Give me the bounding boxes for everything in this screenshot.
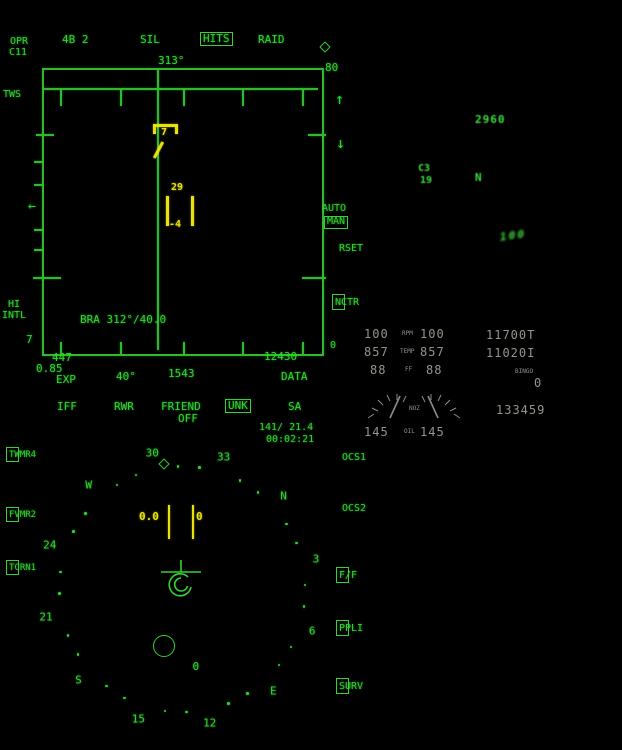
temp-right-value: 857	[420, 346, 445, 358]
compass-tick-dot	[185, 711, 188, 714]
nctr-button[interactable]: NCTR	[332, 294, 345, 310]
bandit-symbol-left-end	[153, 126, 156, 134]
compass-tick-dot	[135, 474, 138, 477]
ifei-clock-readout: 133459	[496, 404, 545, 416]
bandit-number: 7	[161, 128, 167, 138]
nozzle-gauges: NOZ	[360, 378, 468, 424]
compass-tick-dot	[164, 710, 167, 713]
temp-label: TEMP	[400, 349, 414, 355]
hi-label[interactable]: HI	[8, 300, 20, 310]
rpm-left-value: 100	[364, 328, 389, 340]
azimuth-tick	[120, 90, 122, 106]
ff-donor-button[interactable]: F/F	[336, 567, 349, 583]
compass-label-6: 6	[309, 625, 316, 636]
center-right-readout: 0	[196, 511, 203, 522]
radar-bars-option[interactable]: 4B 2	[62, 34, 89, 45]
elevation-tick	[36, 134, 54, 136]
compass-label-21: 21	[39, 611, 52, 622]
compass-label-3: 3	[313, 554, 320, 565]
hsi-left-button-3[interactable]: TCRN1	[6, 560, 19, 575]
exp-button[interactable]: EXP	[56, 374, 76, 385]
mission-time-readout: 00:02:21	[266, 435, 314, 445]
compass-tick-dot	[72, 530, 75, 533]
ff-left-value: 88	[370, 364, 386, 376]
compass-tick-dot	[84, 512, 87, 515]
range-down-arrow-icon[interactable]: ↓	[336, 136, 345, 151]
sa-page-label: SA	[288, 401, 301, 412]
compass-label-30: 30	[146, 448, 159, 459]
oil-right-value: 145	[420, 426, 445, 438]
radar-mode-label: OPR	[10, 37, 28, 47]
elevation-tick	[34, 161, 42, 163]
ppli-donor-button[interactable]: PPLI	[336, 620, 349, 636]
compass-tick-dot	[278, 664, 281, 667]
radar-range-max: 80	[325, 62, 338, 73]
radar-range-min: 0	[330, 341, 336, 351]
target-altitude: 29	[171, 183, 183, 193]
ocs2-button[interactable]: OCS2	[342, 503, 349, 515]
temp-left-value: 857	[364, 346, 389, 358]
azimuth-readout[interactable]: 40°	[116, 371, 136, 382]
hud-heading-letter: N	[475, 172, 482, 183]
ff-right-value: 88	[426, 364, 442, 376]
range-tick	[242, 342, 244, 354]
ownship-aircraft-icon	[157, 556, 205, 602]
elevation-tick	[308, 134, 326, 136]
hud-lower-right-readout: 100	[499, 228, 526, 242]
radar-heading-readout: 313°	[158, 55, 185, 66]
azimuth-tick	[60, 90, 62, 106]
own-altitude: 7	[26, 334, 33, 345]
ifei-panel: 100 RPM 100 857 TEMP 857 88 FF 88	[360, 322, 468, 448]
radar-diamond-icon	[319, 41, 330, 52]
target-bracket-right[interactable]	[191, 196, 194, 226]
oil-left-value: 145	[364, 426, 389, 438]
rpm-right-value: 100	[420, 328, 445, 340]
compass-tick-dot	[257, 491, 260, 494]
course-speed-readout: 141/ 21.4	[259, 423, 313, 433]
radar-sil-option[interactable]: SIL	[140, 34, 160, 45]
compass-tick-dot	[246, 692, 249, 695]
azimuth-tick	[242, 90, 244, 106]
time-readout: 1543	[168, 368, 195, 379]
compass-tick-dot	[105, 685, 108, 688]
unk-filter-button[interactable]: UNK	[225, 399, 251, 413]
compass-tick-dot	[77, 653, 80, 656]
elevation-tick-long	[33, 277, 61, 279]
azimuth-tick	[302, 90, 304, 106]
hsi-left-button-1[interactable]: TWMR4	[6, 447, 19, 462]
fuel-total-readout: 11700T	[486, 329, 535, 341]
waypoint-symbol[interactable]: 0	[153, 635, 175, 657]
readout-12430: 12430	[264, 351, 297, 362]
hud-left-upper-readout: C3	[418, 164, 430, 174]
compass-label-W: W	[85, 480, 92, 491]
hud-altitude-readout: 2960	[475, 114, 506, 125]
compass-label-33: 33	[217, 451, 230, 462]
ff-label: FF	[405, 367, 412, 373]
rwr-button[interactable]: RWR	[114, 401, 134, 412]
compass-label-N: N	[280, 490, 287, 501]
rset-button[interactable]: RSET	[339, 243, 346, 255]
iff-button[interactable]: IFF	[57, 401, 77, 412]
elevation-caret-arrow-icon[interactable]: ←	[28, 200, 36, 213]
bingo-label: BINGO	[515, 369, 533, 375]
bingo-value: 0	[534, 377, 542, 389]
compass-tick-dot	[198, 466, 201, 469]
azimuth-tick	[183, 90, 185, 106]
intl-label[interactable]: INTL	[2, 311, 26, 321]
compass-tick-dot	[285, 523, 288, 526]
man-option[interactable]: MAN	[324, 216, 348, 229]
target-aspect: -4	[169, 220, 181, 230]
radar-raid-option[interactable]: RAID	[258, 34, 285, 45]
oil-label: OIL	[404, 429, 415, 435]
radar-hits-option[interactable]: HITS	[200, 32, 233, 46]
elevation-tick	[34, 184, 42, 186]
range-tick	[120, 342, 122, 354]
center-left-bar	[168, 505, 170, 539]
compass-label-E: E	[270, 685, 277, 696]
data-button[interactable]: DATA	[281, 371, 308, 382]
elevation-tick-long	[302, 277, 326, 279]
surv-donor-button[interactable]: SURV	[336, 678, 349, 694]
radar-scan-mode[interactable]: TWS	[3, 90, 21, 100]
compass-tick-dot	[295, 542, 298, 545]
friend-filter-label[interactable]: FRIEND	[161, 401, 201, 412]
compass-tick-dot	[59, 571, 62, 574]
compass-tick-dot	[58, 592, 61, 595]
compass-tick-dot	[116, 484, 119, 487]
bra-readout: BRA 312°/40.0	[80, 314, 166, 325]
off-label[interactable]: OFF	[178, 413, 198, 424]
radar-center-azimuth-line	[157, 70, 159, 350]
course-diamond-icon[interactable]	[158, 459, 169, 470]
compass-tick-dot	[67, 634, 70, 637]
center-right-bar	[192, 505, 194, 539]
compass-tick-dot	[303, 605, 306, 608]
compass-tick-dot	[177, 465, 180, 468]
radar-channel-label: C11	[9, 48, 27, 58]
compass-tick-dot	[290, 646, 293, 649]
hud-left-lower-readout: 19	[420, 176, 432, 186]
radar-top-band-line	[44, 88, 318, 90]
waypoint-number: 0	[193, 660, 200, 673]
hsi-left-button-2[interactable]: FVMR2	[6, 507, 19, 522]
fuel-internal-readout: 11020I	[486, 347, 535, 359]
compass-tick-dot	[239, 479, 242, 482]
compass-label-24: 24	[43, 540, 56, 551]
ocs1-button[interactable]: OCS1	[342, 452, 349, 464]
range-tick	[183, 342, 185, 354]
range-up-arrow-icon[interactable]: ↑	[335, 92, 344, 107]
cockpit-displays: OPR C11 4B 2 SIL HITS RAID 313° 80 TWS ←…	[0, 0, 622, 750]
groundspeed-readout: 0.0	[139, 511, 159, 522]
range-tick	[302, 342, 304, 354]
rpm-label: RPM	[402, 331, 413, 337]
bandit-symbol-right-end	[175, 126, 178, 134]
compass-label-12: 12	[203, 717, 216, 728]
compass-tick-dot	[227, 702, 230, 705]
elevation-tick	[34, 249, 42, 251]
compass-label-S: S	[75, 675, 82, 686]
compass-tick-dot	[304, 584, 307, 587]
noz-label-svg: NOZ	[409, 405, 420, 412]
compass-tick-dot	[123, 697, 126, 700]
auto-option[interactable]: AUTO	[322, 204, 346, 214]
elevation-tick	[34, 229, 42, 231]
compass-label-15: 15	[132, 714, 145, 725]
